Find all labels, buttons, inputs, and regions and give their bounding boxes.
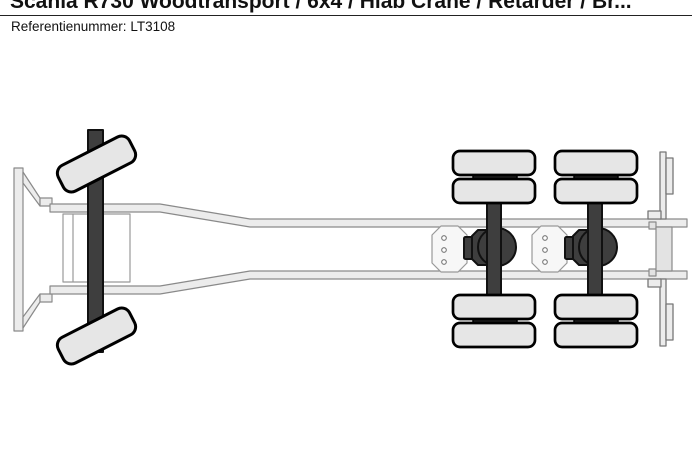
rear-bracket-bar-top xyxy=(660,152,666,219)
rear-bracket-step-bottom xyxy=(648,279,661,287)
rivet-holes-2 xyxy=(543,236,548,265)
rivet-holes-1 xyxy=(442,236,447,265)
rear-axle-1-shaft xyxy=(487,193,501,305)
cross-member-plate-2 xyxy=(532,226,567,272)
truck-chassis-diagram xyxy=(0,0,692,460)
rear-bracket-bar-bottom xyxy=(660,279,666,346)
bumper-tab-bottom xyxy=(40,294,52,302)
rear-axle-2 xyxy=(565,193,617,305)
front-bumper xyxy=(14,168,52,331)
rear-axle-2-shaft xyxy=(588,193,602,305)
cross-member-plate-1 xyxy=(432,226,467,272)
rear-bracket-step-top xyxy=(648,211,661,219)
rear-lamp-top xyxy=(666,158,673,194)
rear-cross-member xyxy=(649,222,672,276)
bumper-flange-top xyxy=(23,172,40,206)
bumper-flange-bottom xyxy=(23,294,40,328)
rear-lamp-bottom xyxy=(666,304,673,340)
rear-axle-1 xyxy=(464,193,516,305)
bumper-bar xyxy=(14,168,23,331)
